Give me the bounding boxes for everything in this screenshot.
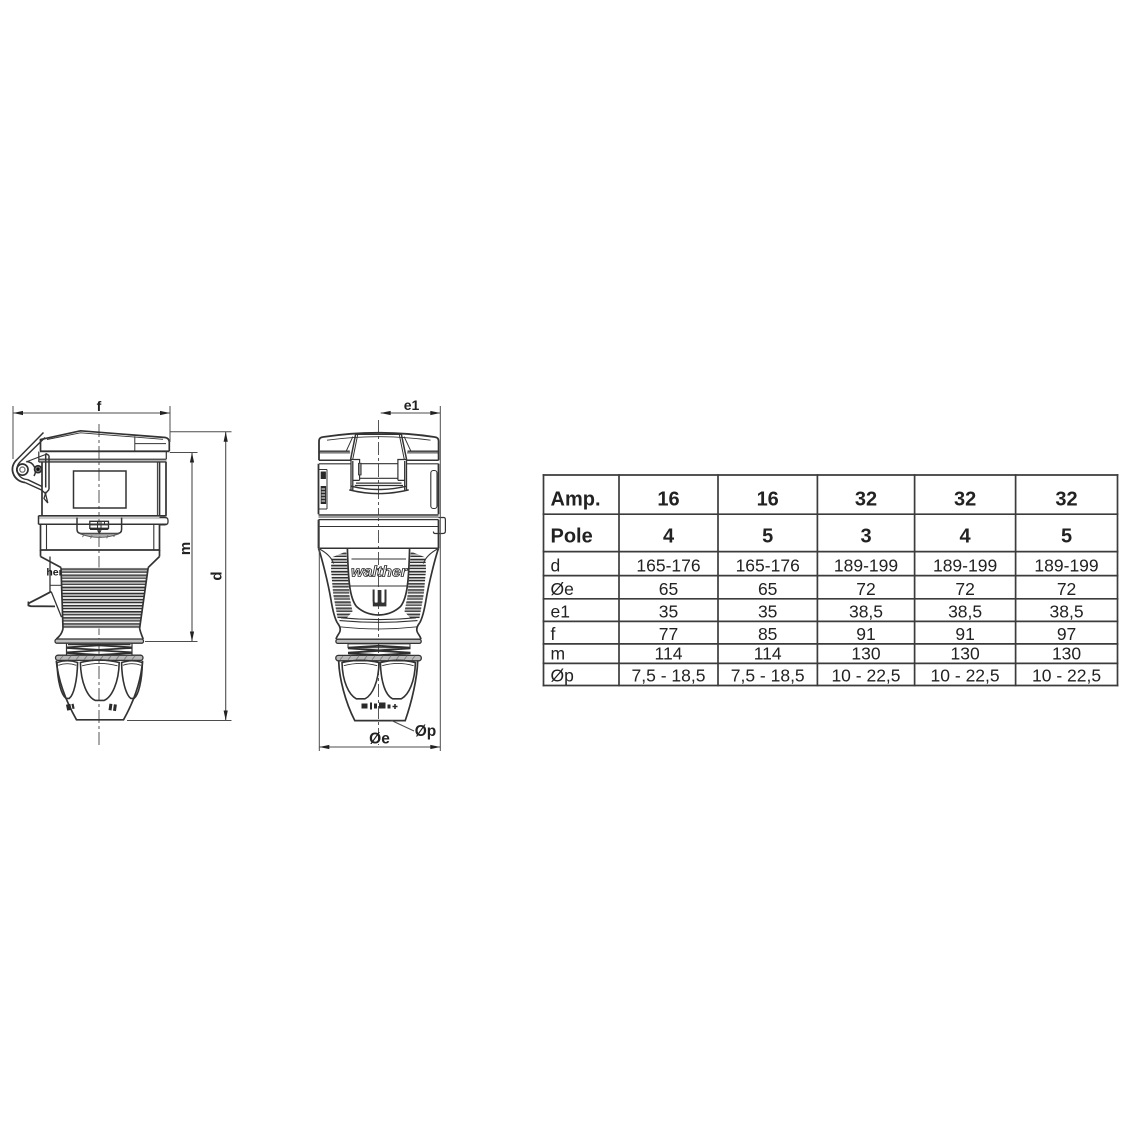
- svg-text:91: 91: [856, 624, 875, 644]
- svg-text:38,5: 38,5: [849, 601, 883, 621]
- svg-text:165-176: 165-176: [636, 556, 700, 576]
- svg-text:165-176: 165-176: [736, 556, 800, 576]
- svg-text:10 - 22,5: 10 - 22,5: [1032, 666, 1101, 686]
- svg-text:d: d: [551, 556, 561, 576]
- svg-text:130: 130: [950, 643, 979, 663]
- svg-text:65: 65: [659, 579, 678, 599]
- svg-text:d: d: [209, 571, 226, 580]
- svg-text:Øe: Øe: [369, 731, 390, 748]
- svg-text:35: 35: [758, 601, 777, 621]
- svg-text:32: 32: [954, 489, 976, 511]
- svg-text:130: 130: [1052, 643, 1081, 663]
- svg-text:32: 32: [855, 489, 877, 511]
- svg-text:130: 130: [851, 643, 880, 663]
- svg-text:72: 72: [955, 579, 974, 599]
- svg-text:97: 97: [1057, 624, 1076, 644]
- svg-text:m: m: [177, 542, 194, 555]
- svg-text:114: 114: [754, 643, 782, 663]
- svg-text:91: 91: [955, 624, 974, 644]
- svg-text:3: 3: [860, 526, 871, 548]
- svg-text:10 - 22,5: 10 - 22,5: [831, 666, 900, 686]
- svg-text:65: 65: [758, 579, 777, 599]
- svg-text:32: 32: [1055, 489, 1077, 511]
- svg-text:f: f: [97, 398, 102, 414]
- svg-text:Øp: Øp: [551, 666, 574, 686]
- svg-text:5: 5: [762, 526, 773, 548]
- svg-text:e1: e1: [404, 397, 420, 413]
- svg-text:4: 4: [960, 526, 972, 548]
- svg-text:e1: e1: [551, 601, 570, 621]
- svg-text:10 - 22,5: 10 - 22,5: [931, 666, 1000, 686]
- svg-text:f: f: [551, 624, 556, 644]
- svg-text:77: 77: [659, 624, 678, 644]
- svg-text:72: 72: [1057, 579, 1076, 599]
- svg-text:5: 5: [1061, 526, 1072, 548]
- svg-text:16: 16: [757, 489, 779, 511]
- svg-text:114: 114: [655, 643, 683, 663]
- svg-text:16: 16: [657, 489, 679, 511]
- svg-text:72: 72: [856, 579, 875, 599]
- svg-text:189-199: 189-199: [933, 556, 997, 576]
- svg-text:38,5: 38,5: [948, 601, 982, 621]
- svg-text:38,5: 38,5: [1050, 601, 1084, 621]
- svg-text:4: 4: [663, 526, 675, 548]
- svg-text:35: 35: [659, 601, 678, 621]
- svg-text:m: m: [551, 643, 566, 663]
- svg-text:189-199: 189-199: [1034, 556, 1098, 576]
- svg-text:7,5 - 18,5: 7,5 - 18,5: [731, 666, 805, 686]
- svg-text:7,5 - 18,5: 7,5 - 18,5: [632, 666, 706, 686]
- svg-text:Øe: Øe: [551, 579, 574, 599]
- svg-text:85: 85: [758, 624, 777, 644]
- svg-text:walther: walther: [351, 564, 408, 581]
- svg-text:Øp: Øp: [415, 723, 437, 740]
- svg-text:189-199: 189-199: [834, 556, 898, 576]
- svg-text:Amp.: Amp.: [551, 489, 601, 511]
- svg-text:Pole: Pole: [551, 526, 593, 548]
